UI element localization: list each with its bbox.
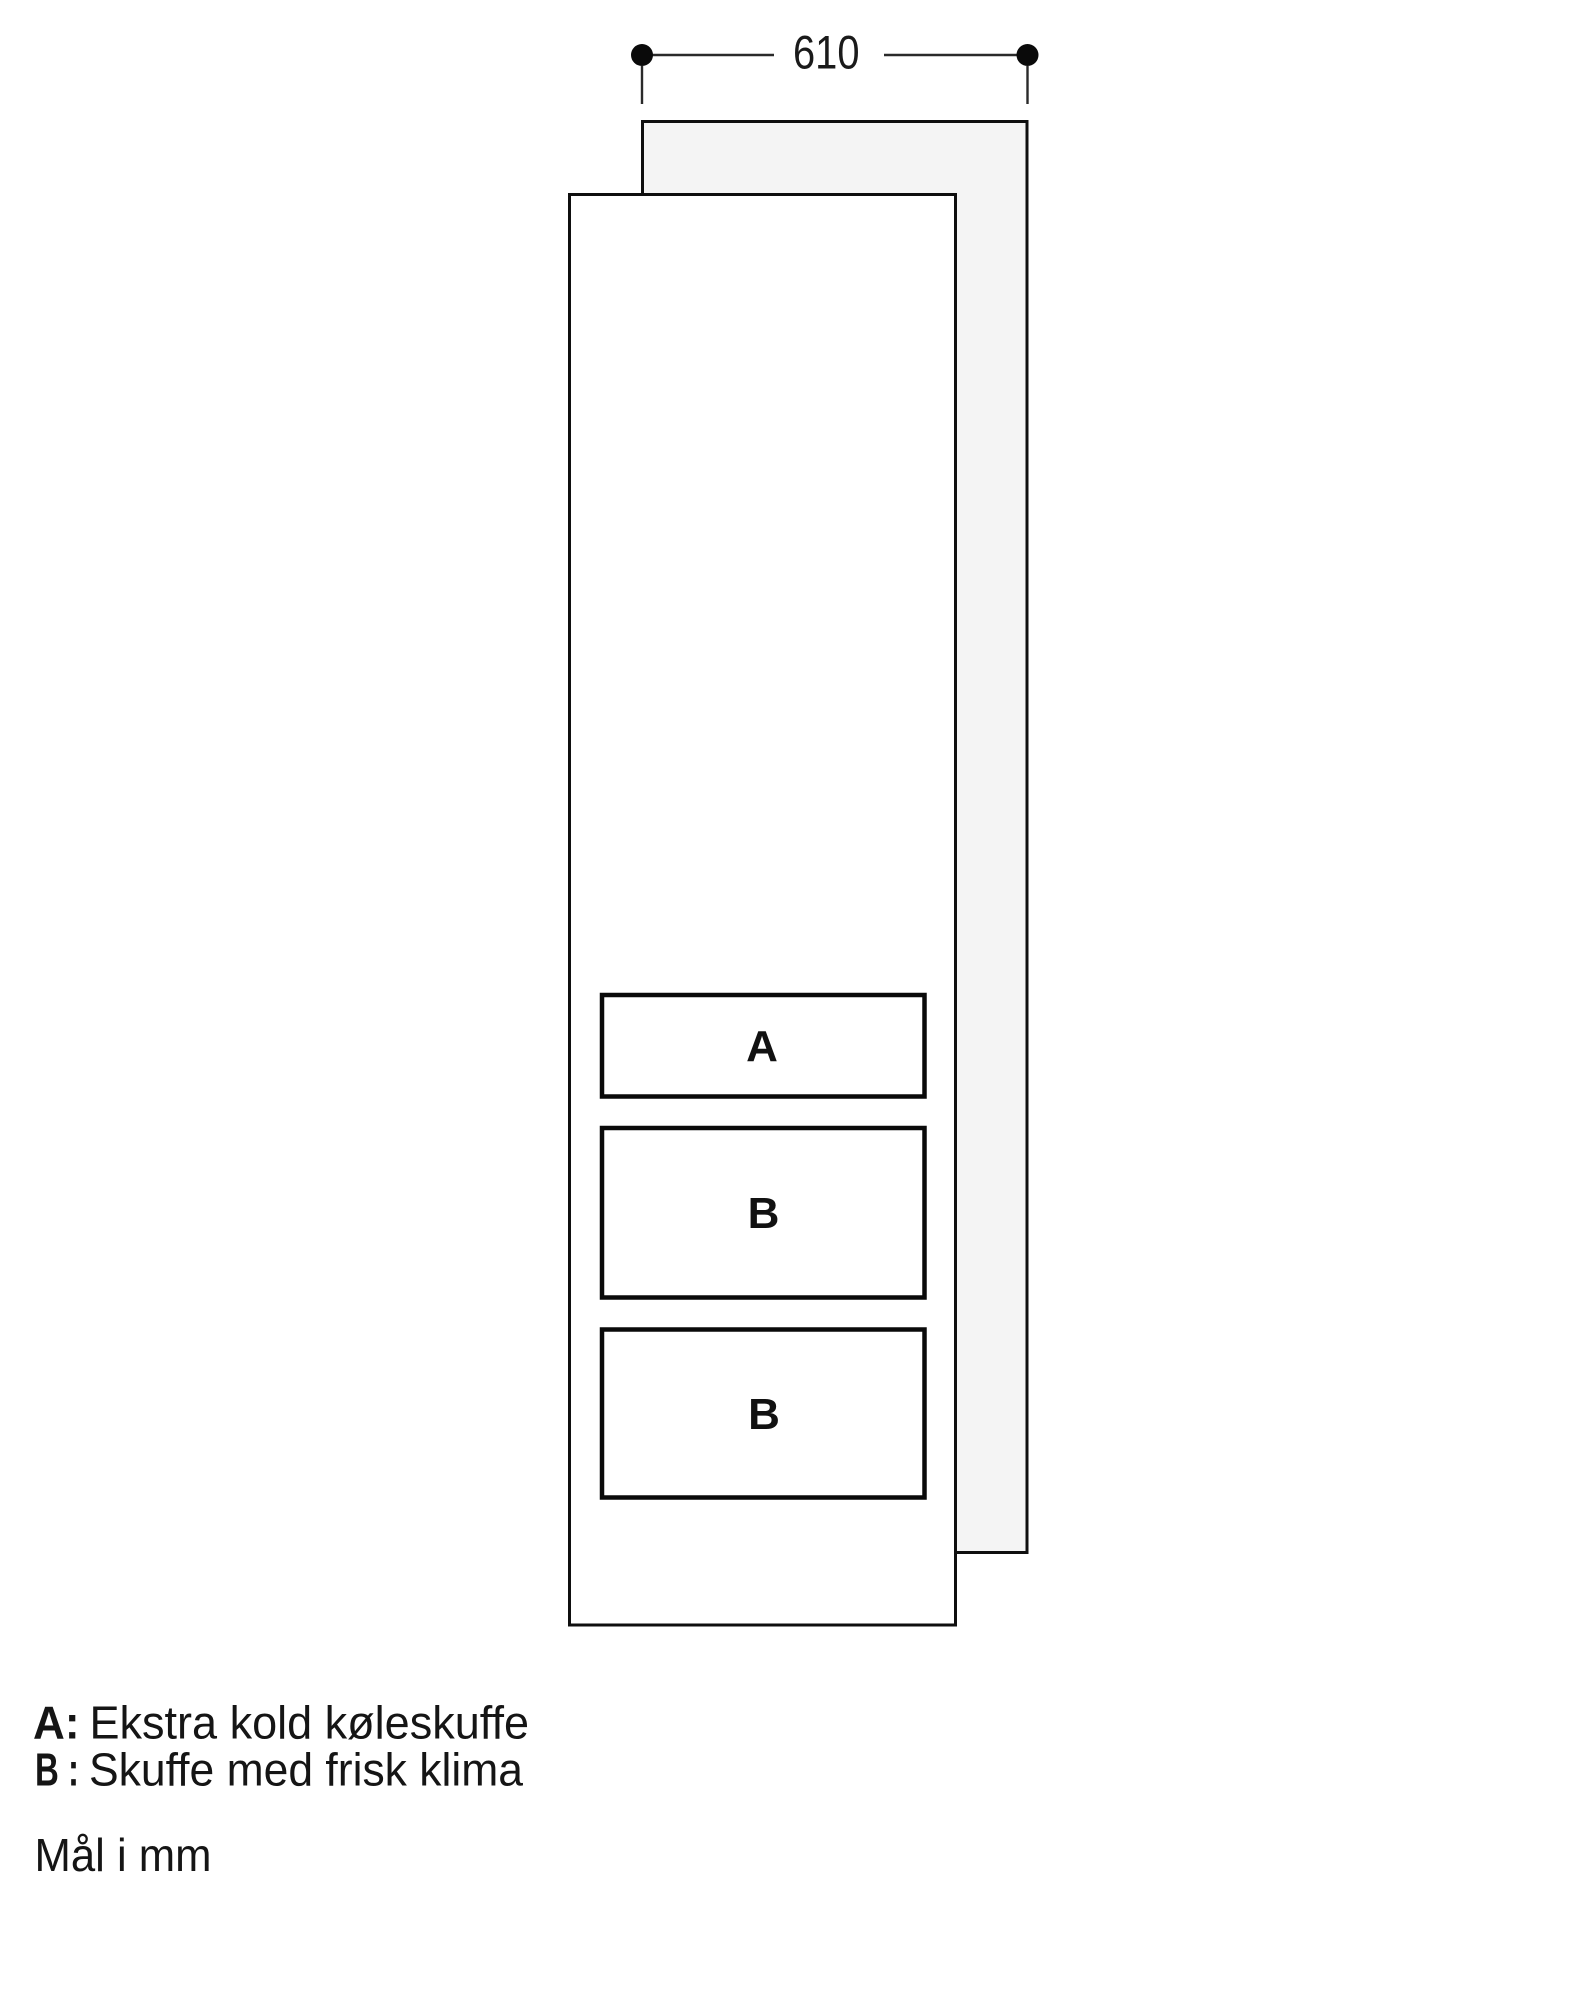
- svg-text:A:Ekstra kold køleskuffe: A:Ekstra kold køleskuffe: [33, 1697, 529, 1749]
- svg-text:A: A: [746, 1022, 778, 1071]
- svg-text:610: 610: [793, 25, 860, 78]
- svg-text:Mål i mm: Mål i mm: [35, 1829, 212, 1881]
- svg-text:B: B: [748, 1390, 780, 1439]
- svg-text:B :Skuffe med frisk klima: B :Skuffe med frisk klima: [35, 1744, 523, 1796]
- svg-text:B: B: [748, 1189, 780, 1238]
